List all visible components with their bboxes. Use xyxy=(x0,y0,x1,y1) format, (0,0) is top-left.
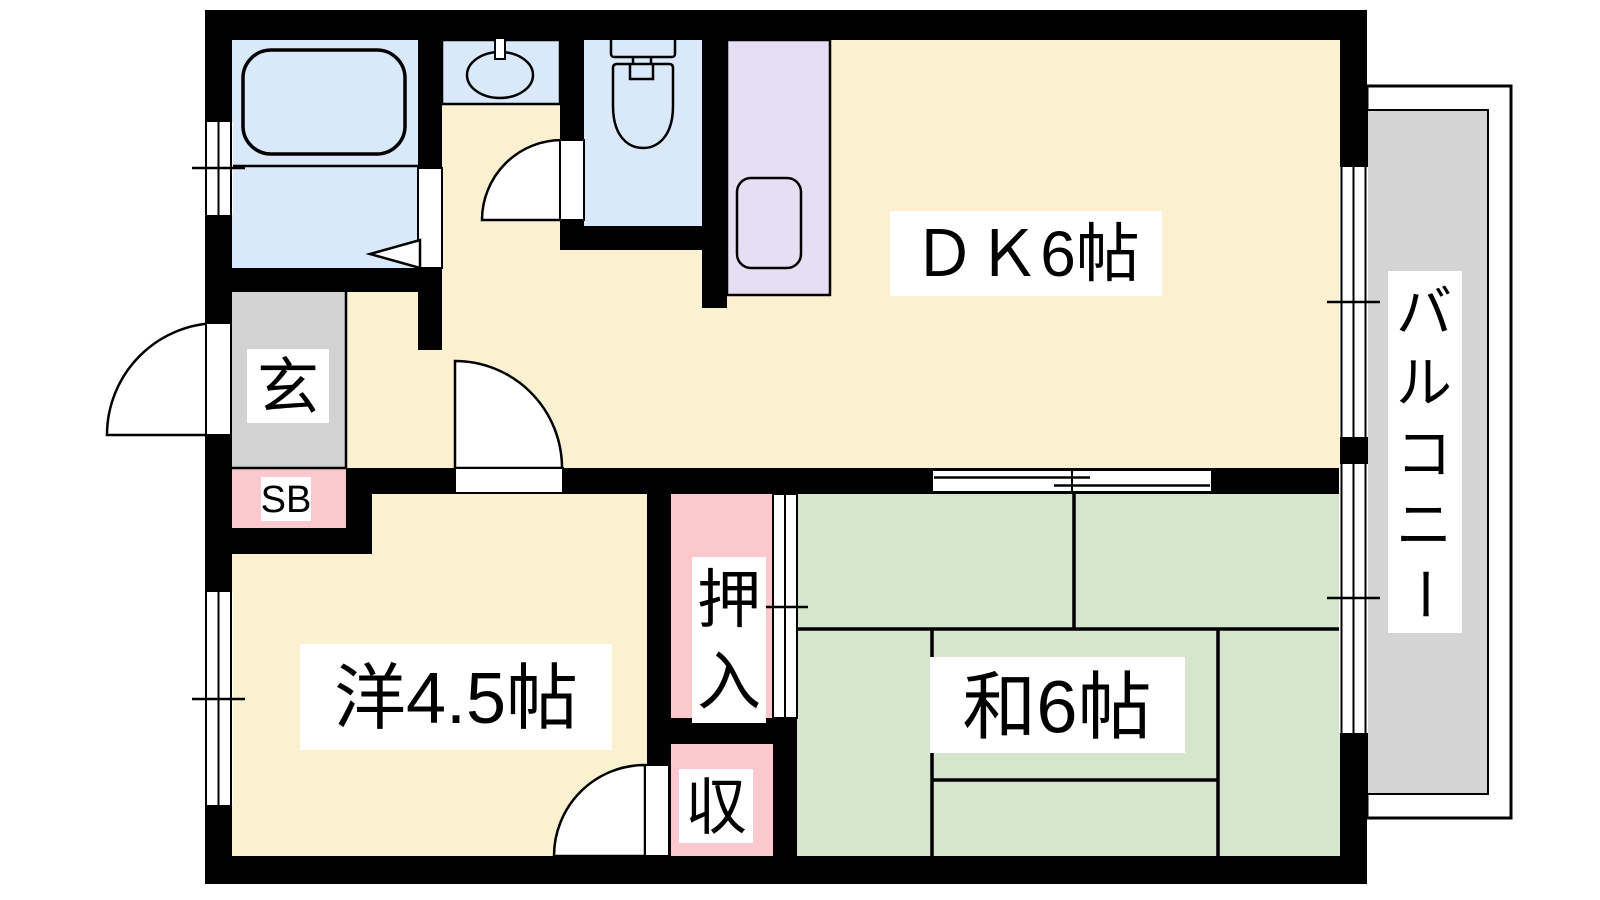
washitsu-label-text: 和6帖 xyxy=(962,666,1151,749)
balcony-label-char: コ xyxy=(1396,423,1452,486)
label-washitsu: 和6帖 xyxy=(930,657,1185,753)
wall-right xyxy=(1340,10,1367,884)
sliding-partition-washitsu xyxy=(932,470,1212,492)
balcony-label-char: バ xyxy=(1396,281,1452,344)
dk-label-text: ＤＫ6帖 xyxy=(912,218,1140,290)
oshiire-label-char: 入 xyxy=(697,646,761,718)
label-genkan: 玄 xyxy=(247,349,329,423)
oshiire-label-char: 押 xyxy=(697,564,761,636)
wall-bottom xyxy=(205,856,1367,884)
label-shunou: 収 xyxy=(679,769,753,843)
label-oshiire: 押 入 xyxy=(692,557,766,723)
genkan-label-text: 玄 xyxy=(257,354,319,423)
wall-toilet-right xyxy=(702,40,727,308)
label-dk: ＤＫ6帖 xyxy=(890,211,1162,296)
wall-toilet-bottom xyxy=(560,226,726,250)
shunou-label-text: 収 xyxy=(685,774,747,843)
label-shoebox: SB xyxy=(261,477,312,521)
label-youshitsu: 洋4.5帖 xyxy=(300,644,612,750)
wall-bathroom-bottom xyxy=(232,268,442,292)
label-balcony: バ ル コ ニ ー xyxy=(1388,271,1462,633)
entrance-door xyxy=(107,323,231,435)
balcony-label-char: ニ xyxy=(1396,494,1452,557)
shoebox-label-text: SB xyxy=(261,479,312,521)
floor-plan: ＤＫ6帖 和6帖 洋4.5帖 押 入 収 玄 SB バ xyxy=(0,0,1600,900)
wall-top xyxy=(205,10,1367,40)
kitchen-counter xyxy=(727,40,830,295)
balcony-label-char: ー xyxy=(1393,566,1456,622)
floor-plan-page: ＤＫ6帖 和6帖 洋4.5帖 押 入 収 玄 SB バ xyxy=(0,0,1600,900)
wall-shunou-right xyxy=(773,744,797,856)
toilet-floor xyxy=(584,40,702,226)
balcony-label-char: ル xyxy=(1396,352,1452,415)
youshitsu-label-text: 洋4.5帖 xyxy=(334,659,578,739)
